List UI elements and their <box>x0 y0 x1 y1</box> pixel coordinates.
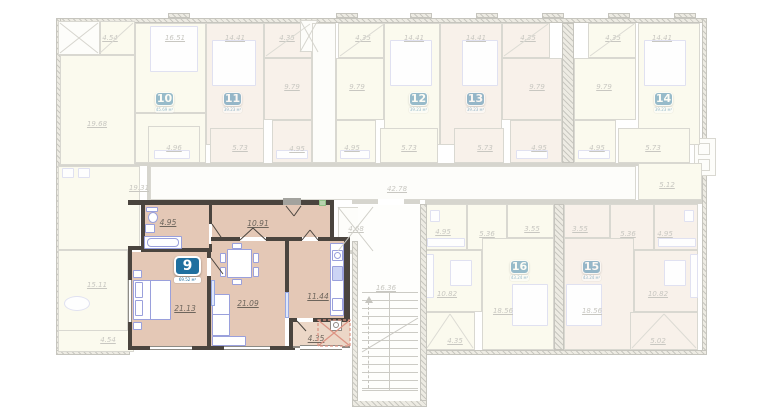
apartment-11-number: 11 <box>223 92 242 106</box>
apt9-hallway <box>212 205 330 237</box>
apt12-balcony-area: 4.35 <box>355 34 371 42</box>
apartment-9-badge[interactable]: 9 69.52 м² <box>174 256 201 283</box>
apartment-13-badge[interactable]: 13 39.23 м² <box>466 92 485 113</box>
stair-wall-bottom <box>352 400 427 407</box>
apt12-bedroom-area: 14.41 <box>404 34 424 42</box>
apt9-wall <box>128 200 334 205</box>
table-icon <box>450 260 472 286</box>
sofa-line <box>213 314 229 315</box>
service-marker <box>319 200 326 206</box>
pillow-icon <box>135 300 143 316</box>
apartment-13-area-caption: 39.23 м² <box>466 107 485 113</box>
apt10-kitchen <box>60 55 135 165</box>
apt16-kitchen-area: 10.82 <box>437 290 457 298</box>
stair-arrow-line <box>368 302 369 388</box>
apt16-bathroom-area: 4.95 <box>435 228 451 236</box>
left-wing-room <box>58 250 128 332</box>
bed-icon <box>150 26 198 72</box>
apartment-15-badge[interactable]: 15 43.24 м² <box>582 260 601 281</box>
radiator-icon <box>285 292 289 318</box>
facade-bump <box>542 13 564 18</box>
apartment-16-number: 16 <box>510 260 529 274</box>
corridor-area: 42.78 <box>387 185 407 193</box>
apt11-kitchen-area: 9.79 <box>284 83 300 91</box>
apt13-kitchen-area: 9.79 <box>529 83 545 91</box>
corridor-left-cap <box>147 166 150 200</box>
apartment-12-badge[interactable]: 12 39.23 м² <box>409 92 428 113</box>
apt9-kitchen-area: 11.44 <box>307 292 328 301</box>
washer-drum <box>333 322 339 328</box>
apt16-bedroom-area: 18.56 <box>493 307 513 315</box>
apt9-wall <box>266 237 289 241</box>
counter-icon <box>426 254 434 298</box>
apt14-storage-area: 5.12 <box>659 181 675 189</box>
table-icon <box>664 260 686 286</box>
apt13-balcony-area: 4.35 <box>520 34 536 42</box>
table-oval-icon <box>64 296 90 311</box>
apt10-balcony-area: 4.54 <box>102 34 118 42</box>
apartment-10-number: 10 <box>155 92 174 106</box>
radiator-icon <box>211 280 215 306</box>
left-wing-living-area: 19.31 <box>129 184 149 192</box>
bed-icon <box>644 40 686 86</box>
window <box>128 280 132 322</box>
apt14-bathroom-area: 4.95 <box>589 144 605 152</box>
apartment-14-area-caption: 39.23 м² <box>654 107 673 113</box>
apt15-wardrobe-area: 3.55 <box>572 225 588 233</box>
chair-icon <box>220 267 226 277</box>
facade-bump <box>336 13 358 18</box>
apartment-16-area-caption: 43.24 м² <box>510 275 529 281</box>
apt10-bathroom-area: 4.96 <box>166 144 182 152</box>
fixture-icon <box>78 168 90 178</box>
stove-icon <box>332 266 343 281</box>
elevator-area: 4.68 <box>348 225 364 233</box>
wall-16-15 <box>554 204 564 350</box>
floor-plan: 9 69.52 м² 10 45.69 м² 11 39.23 м² 12 39… <box>0 0 768 410</box>
apt9-wall <box>209 205 212 224</box>
dining-table-icon <box>227 249 252 278</box>
toilet-icon <box>148 212 158 223</box>
apt16-balcony-area: 4.35 <box>447 337 463 345</box>
apt13-hall-area: 5.73 <box>477 144 493 152</box>
apartment-12-area-caption: 39.23 м² <box>409 107 428 113</box>
window <box>224 346 270 350</box>
fixture-icon <box>62 168 74 178</box>
staircase-area: 16.36 <box>376 284 396 292</box>
bed-icon <box>512 284 548 326</box>
apt11-hall-area: 5.73 <box>232 144 248 152</box>
stair-landing-line <box>362 390 418 391</box>
apt12-bathroom-area: 4.95 <box>344 144 360 152</box>
apartment-15-area-caption: 43.24 м² <box>582 275 601 281</box>
facade-bump <box>168 13 190 18</box>
apt12-kitchen-area: 9.79 <box>349 83 365 91</box>
left-wing-balcony-area: 4.54 <box>100 336 116 344</box>
apt9-wall <box>330 200 334 241</box>
stair-door-gap <box>378 199 404 205</box>
toilet-icon <box>684 210 694 222</box>
apt9-bathroom-area: 4.95 <box>160 218 177 227</box>
apt9-bedroom-area: 21.13 <box>174 304 195 313</box>
apt13-bedroom-area: 14.41 <box>466 34 486 42</box>
chair-icon <box>232 279 242 285</box>
apt16-hall-area: 5.36 <box>479 230 495 238</box>
apt11-bedroom-area: 14.41 <box>225 34 245 42</box>
apt13-bathroom-area: 4.95 <box>531 144 547 152</box>
apt15-kitchen-area: 10.82 <box>648 290 668 298</box>
toilet-icon <box>430 210 440 222</box>
apt15-balcony-area: 5.02 <box>650 337 666 345</box>
sink-icon <box>145 224 155 233</box>
stair-arrow-head <box>365 296 373 303</box>
window <box>150 346 192 350</box>
apartment-9-area-caption: 69.52 м² <box>174 277 201 283</box>
sofa-corner-icon <box>212 336 246 346</box>
wall-right <box>702 18 707 355</box>
bed-icon <box>212 40 256 86</box>
pillow-icon <box>135 282 143 298</box>
apt14-hall-area: 5.73 <box>645 144 661 152</box>
apt9-wall <box>289 318 293 348</box>
apartment-10-badge[interactable]: 10 45.69 м² <box>155 92 174 113</box>
apt9-wall <box>344 237 350 322</box>
apartment-16-badge[interactable]: 16 43.24 м² <box>510 260 529 281</box>
window <box>300 345 342 350</box>
apartment-13-number: 13 <box>466 92 485 106</box>
apartment-10-area-caption: 45.69 м² <box>155 107 174 113</box>
apt10-kitchen-area: 19.68 <box>87 120 107 128</box>
left-wing-balcony <box>58 330 134 352</box>
apartment-11-area-caption: 39.23 м² <box>223 107 242 113</box>
apt14-kitchen-area: 9.79 <box>596 83 612 91</box>
apartment-9-number: 9 <box>174 256 201 276</box>
bathtub-inner <box>147 238 179 247</box>
counter-icon <box>690 254 698 298</box>
chair-icon <box>253 253 259 263</box>
bed-icon <box>462 40 498 86</box>
bathtub-icon <box>658 238 696 247</box>
facade-bump <box>608 13 630 18</box>
left-wing-room-area: 15.11 <box>87 281 107 289</box>
entrance-door <box>283 198 301 205</box>
nightstand-icon <box>133 270 142 278</box>
bathtub-icon <box>427 238 465 247</box>
apt9-wall <box>207 252 211 258</box>
apt12-hall-area: 5.73 <box>401 144 417 152</box>
apt15-bathroom-area: 4.95 <box>657 230 673 238</box>
nightstand-icon <box>133 322 142 330</box>
chair-icon <box>232 243 242 249</box>
apartment-14-number: 14 <box>654 92 673 106</box>
facade-bump <box>410 13 432 18</box>
apt10-balcony-glazed <box>58 21 100 55</box>
kitchen-sink-bowl <box>334 252 341 259</box>
stair-steps <box>362 292 418 390</box>
apt14-bedroom-area: 14.41 <box>652 34 672 42</box>
apt9-balcony-area: 4.35 <box>308 334 325 343</box>
apt9-wall <box>211 237 240 241</box>
bed-icon <box>566 284 602 326</box>
facade-bump <box>674 13 696 18</box>
facade-bump <box>476 13 498 18</box>
apt9-wall <box>209 244 212 252</box>
stair-divider <box>389 292 390 390</box>
apt11-bathroom-area: 4.95 <box>289 145 305 153</box>
apartment-11-badge[interactable]: 11 39.23 м² <box>223 92 242 113</box>
wall-bottom-right <box>425 350 707 355</box>
fridge-icon <box>332 298 343 311</box>
apartment-14-badge[interactable]: 14 39.23 м² <box>654 92 673 113</box>
bed-icon <box>390 40 432 86</box>
apartment-12-number: 12 <box>409 92 428 106</box>
stair-wall-right <box>420 204 427 407</box>
left-wing-living <box>58 166 140 250</box>
apt14-balcony-area: 4.35 <box>605 34 621 42</box>
apt9-hallway-area: 10.91 <box>247 219 268 228</box>
shaft-wall-13-14 <box>562 23 574 163</box>
apt15-hall-area: 5.36 <box>620 230 636 238</box>
chair-icon <box>220 253 226 263</box>
corridor <box>150 166 636 200</box>
apt10-bedroom-area: 16.51 <box>165 34 185 42</box>
chair-icon <box>253 267 259 277</box>
bed-line <box>150 281 151 319</box>
apt9-living-area: 21.09 <box>237 299 258 308</box>
apt16-wardrobe-area: 3.55 <box>524 225 540 233</box>
apt11-balcony-area: 4.35 <box>279 34 295 42</box>
apt15-bedroom-area: 18.56 <box>582 307 602 315</box>
apartment-15-number: 15 <box>582 260 601 274</box>
apt12-shaft-strip <box>312 23 336 163</box>
